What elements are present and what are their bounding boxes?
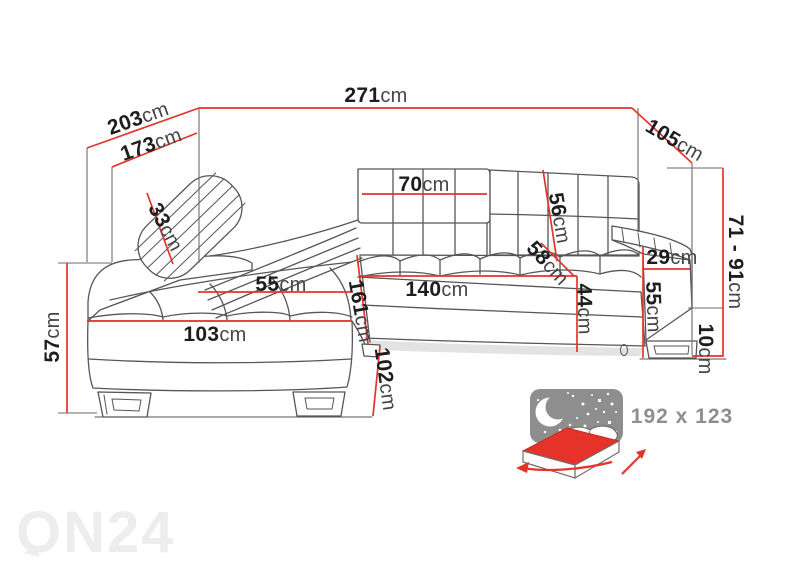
dim-label-57: 57cm [41,311,64,362]
chaise-legs [98,392,345,417]
corner-sofa-dimension-diagram: ON24 [0,0,792,566]
dim-label-71-91: 71 - 91cm [724,215,747,310]
dim-label-55-chaise: 55cm [255,273,306,296]
dim-label-140: 140cm [405,278,468,301]
dim-label-10: 10cm [694,323,717,374]
dim-label-105: 105cm [642,115,708,167]
dim-label-44: 44cm [572,283,597,335]
sleeping-area-size-label: 192 x 123 [631,405,733,428]
right-leg-bracket [646,341,697,358]
sofa-front-face [358,256,645,346]
dim-label-29: 29cm [646,246,697,269]
dim-label-103: 103cm [183,323,246,346]
diagram-canvas: ON24 [0,0,792,566]
leg-bracket [293,392,345,416]
dim-label-271: 271cm [344,84,407,107]
dim-label-55-armrest: 55cm [641,281,666,333]
watermark-text: ON24 [16,500,176,565]
dim-label-70: 70cm [398,173,449,196]
depth-arrow [622,454,642,474]
watermark-logo: ON24 [16,500,176,565]
sleeping-area-icon [516,389,646,478]
